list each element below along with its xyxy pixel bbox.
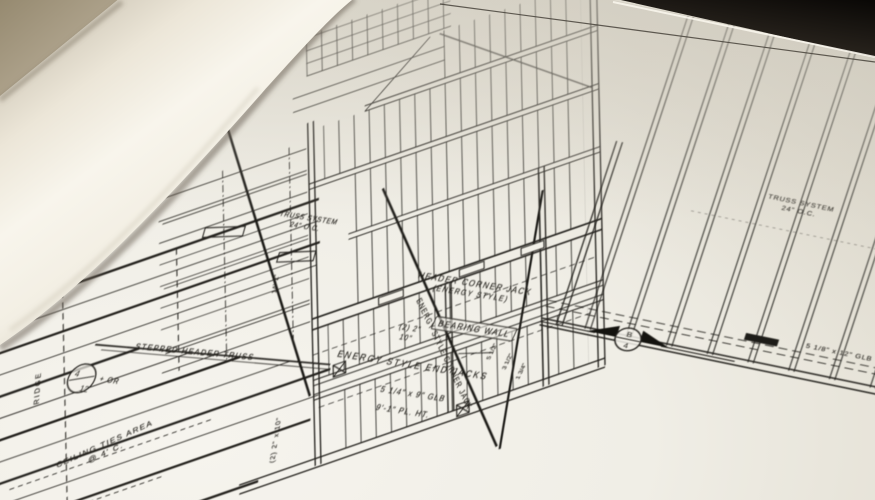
blueprint-photo: 4 12 HEADER CORNER JACK (ENERGY STYLE) B… xyxy=(0,0,875,500)
truss-field xyxy=(561,0,875,500)
pitch-circle-symbol: 4 12 xyxy=(62,362,100,395)
stepped-header-line-thin xyxy=(101,272,327,447)
left-arm-joists xyxy=(158,149,310,373)
blueprint-sheet: 4 12 HEADER CORNER JACK (ENERGY STYLE) B… xyxy=(0,0,875,500)
